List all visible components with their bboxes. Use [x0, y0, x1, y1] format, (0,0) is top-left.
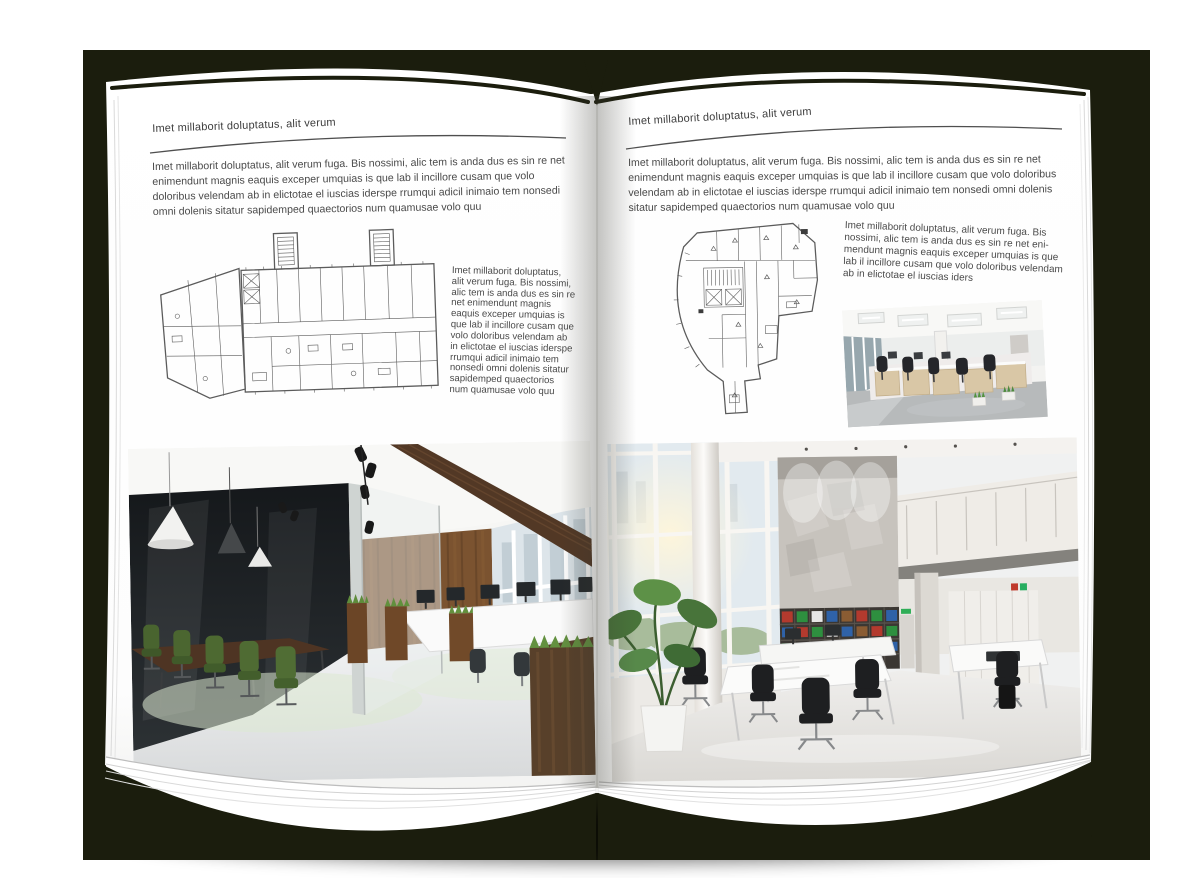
left-page-intro: Imet millaborit doluptatus, alit verum f…	[152, 153, 567, 220]
office-photo-right	[606, 437, 1083, 782]
right-page-sidebar: Imet millaborit doluptatus, alit verum f…	[843, 220, 1067, 288]
floor-plan-left	[150, 221, 458, 419]
right-page-intro: Imet millaborit doluptatus, alit verum f…	[628, 152, 1061, 216]
floor-plan-right	[646, 219, 837, 418]
right-page-header: Imet millaborit doluptatus, alit verum	[628, 106, 812, 128]
left-header-rule	[150, 136, 566, 153]
office-photo-left	[128, 441, 596, 783]
left-page-header: Imet millaborit doluptatus, alit verum	[152, 117, 336, 135]
magazine-mockup-scene: Imet millaborit doluptatus, alit verum I…	[0, 0, 1200, 891]
office-photo-small	[842, 300, 1048, 428]
left-page-sidebar: Imet millaborit doluptatus, alit verum f…	[449, 266, 576, 399]
right-header-rule	[626, 127, 1062, 150]
